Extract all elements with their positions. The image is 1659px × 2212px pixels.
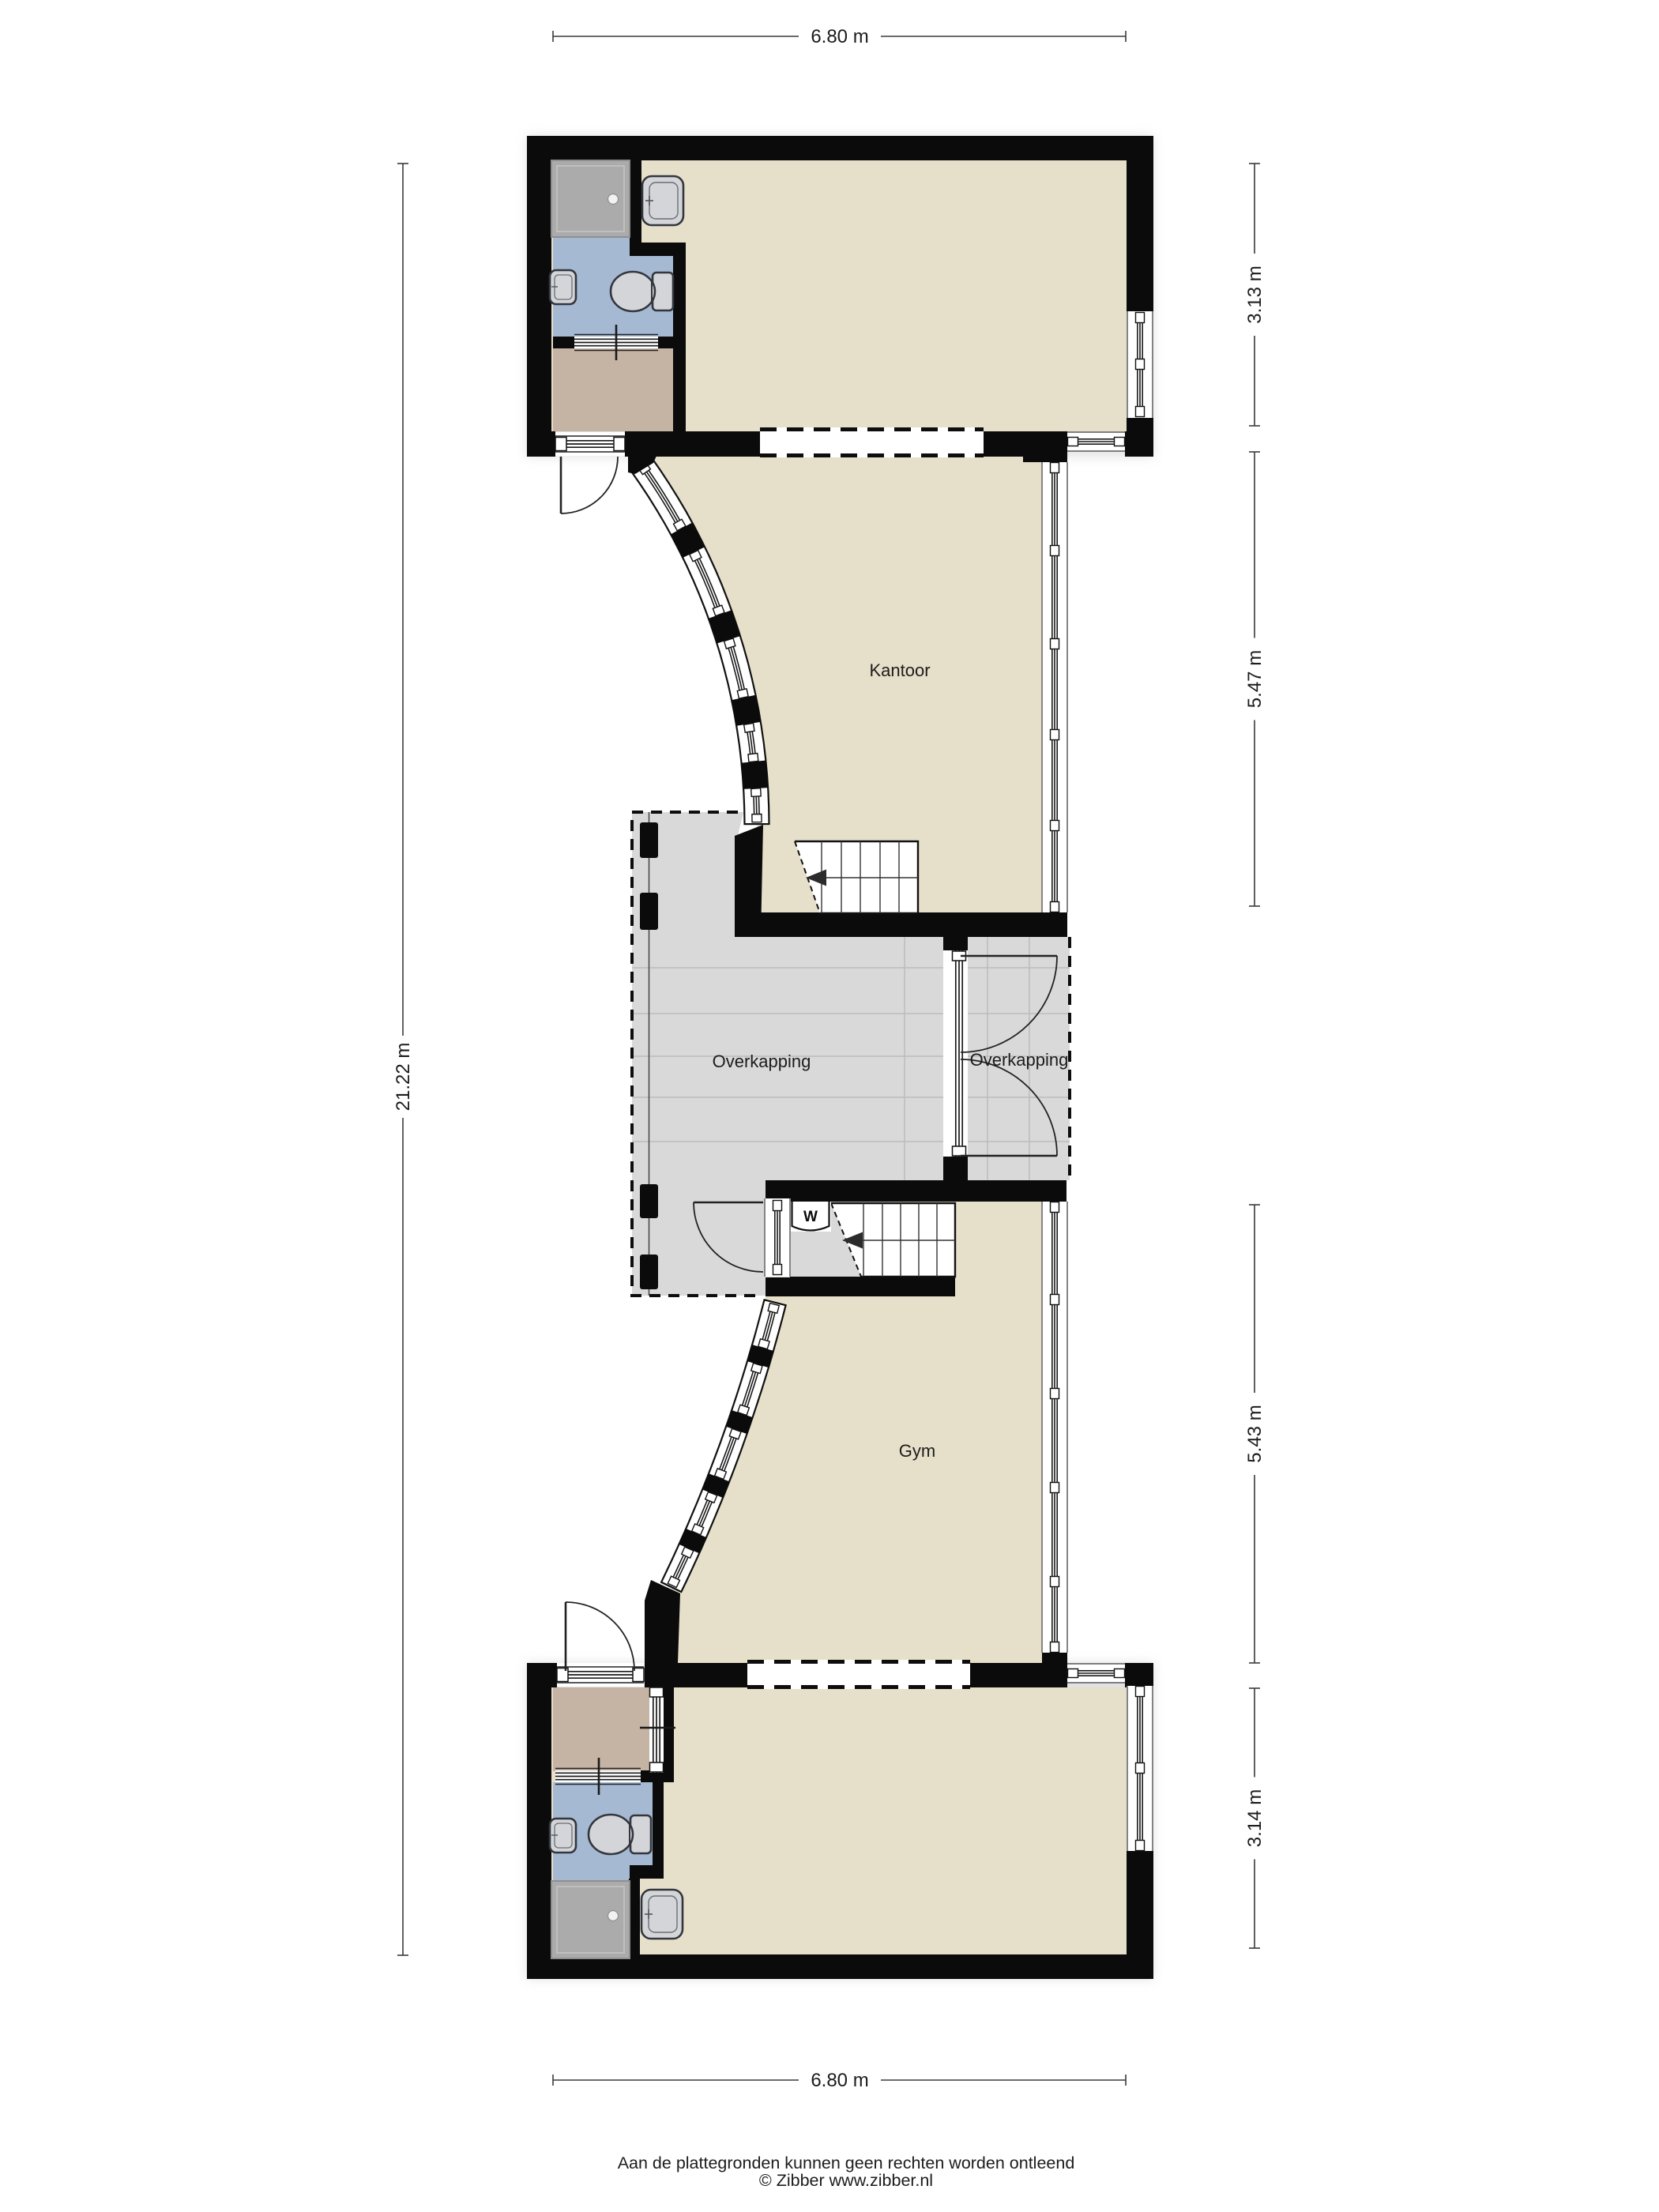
svg-text:Kantoor: Kantoor	[869, 660, 930, 680]
svg-text:© Zibber www.zibber.nl: © Zibber www.zibber.nl	[759, 2171, 933, 2190]
svg-text:W: W	[803, 1209, 818, 1225]
svg-text:Overkapping: Overkapping	[970, 1050, 1069, 1070]
svg-text:21.22 m: 21.22 m	[393, 1043, 414, 1112]
svg-text:6.80 m: 6.80 m	[811, 2070, 868, 2091]
svg-text:3.13 m: 3.13 m	[1244, 265, 1266, 323]
svg-text:6.80 m: 6.80 m	[811, 26, 868, 47]
svg-text:3.14 m: 3.14 m	[1244, 1789, 1266, 1847]
svg-text:Aan de plattegronden kunnen ge: Aan de plattegronden kunnen geen rechten…	[618, 2154, 1075, 2172]
svg-text:Gym: Gym	[899, 1441, 935, 1461]
svg-text:5.47 m: 5.47 m	[1244, 650, 1266, 708]
svg-text:5.43 m: 5.43 m	[1244, 1405, 1266, 1462]
svg-text:Overkapping: Overkapping	[713, 1051, 811, 1071]
